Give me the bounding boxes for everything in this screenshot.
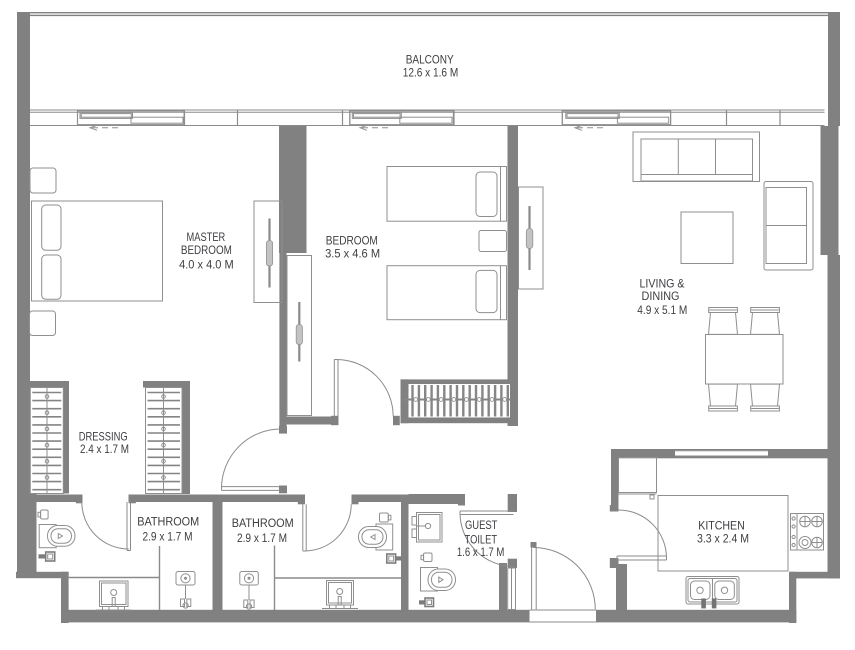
svg-text:2.9 x 1.7 M: 2.9 x 1.7 M: [143, 530, 193, 544]
svg-text:KITCHEN: KITCHEN: [698, 519, 745, 533]
svg-text:1.6 x 1.7 M: 1.6 x 1.7 M: [457, 545, 505, 559]
svg-text:GUEST: GUEST: [465, 518, 498, 532]
svg-text:4.0 x 4.0 M: 4.0 x 4.0 M: [179, 258, 234, 272]
svg-text:BATHROOM: BATHROOM: [137, 515, 199, 529]
svg-text:3.5 x 4.6 M: 3.5 x 4.6 M: [325, 246, 380, 260]
svg-text:3.3 x 2.4 M: 3.3 x 2.4 M: [697, 532, 749, 546]
svg-text:12.6 x 1.6 M: 12.6 x 1.6 M: [403, 66, 459, 80]
svg-text:DINING: DINING: [642, 289, 680, 303]
svg-text:2.9 x 1.7 M: 2.9 x 1.7 M: [237, 531, 287, 545]
svg-text:4.9 x 5.1 M: 4.9 x 5.1 M: [637, 303, 687, 317]
svg-text:2.4 x 1.7 M: 2.4 x 1.7 M: [80, 442, 129, 456]
svg-text:BEDROOM: BEDROOM: [181, 243, 232, 257]
svg-text:BATHROOM: BATHROOM: [232, 516, 294, 530]
svg-text:BALCONY: BALCONY: [406, 53, 454, 67]
